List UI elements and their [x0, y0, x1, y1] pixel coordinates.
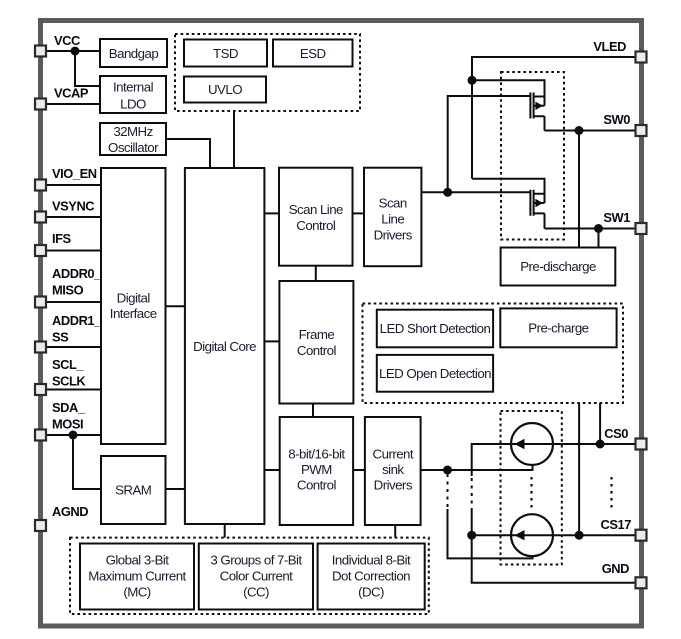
- svg-text:Interface: Interface: [110, 306, 157, 321]
- svg-text:Digital Core: Digital Core: [193, 339, 256, 354]
- svg-text:SW1: SW1: [603, 210, 630, 225]
- svg-text:Drivers: Drivers: [374, 477, 413, 492]
- svg-text:Scan: Scan: [379, 196, 407, 211]
- svg-text:3 Groups of 7-Bit: 3 Groups of 7-Bit: [210, 553, 302, 568]
- svg-text:Current: Current: [373, 447, 414, 462]
- svg-text:(MC): (MC): [123, 585, 150, 600]
- svg-text:Scan Line: Scan Line: [289, 202, 343, 217]
- svg-text:AGND: AGND: [52, 504, 88, 519]
- svg-text:LED Short Detection: LED Short Detection: [380, 321, 491, 336]
- svg-text:(DC): (DC): [358, 585, 384, 600]
- svg-text:Maximum Current: Maximum Current: [88, 569, 186, 584]
- svg-text:ESD: ESD: [300, 46, 326, 61]
- svg-text:SCL_: SCL_: [52, 357, 84, 372]
- svg-text:SRAM: SRAM: [115, 483, 151, 498]
- svg-text:SCLK: SCLK: [52, 374, 86, 389]
- svg-text:LDO: LDO: [120, 97, 146, 112]
- svg-text:Bandgap: Bandgap: [109, 46, 159, 61]
- svg-text:Pre-charge: Pre-charge: [528, 321, 588, 336]
- svg-text:Frame: Frame: [299, 327, 335, 342]
- svg-text:32MHz: 32MHz: [113, 124, 152, 139]
- svg-text:sink: sink: [382, 462, 404, 477]
- svg-text:VCAP: VCAP: [54, 86, 89, 101]
- svg-text:Control: Control: [297, 477, 337, 492]
- svg-text:CS0: CS0: [604, 426, 628, 441]
- svg-text:Individual 8-Bit: Individual 8-Bit: [332, 553, 411, 568]
- svg-text:Digital: Digital: [117, 291, 151, 306]
- svg-text:SS: SS: [52, 330, 69, 345]
- svg-text:PWM: PWM: [301, 462, 332, 477]
- svg-text:Control: Control: [296, 218, 336, 233]
- svg-text:ADDR0_: ADDR0_: [52, 266, 102, 281]
- svg-text:Line: Line: [381, 212, 404, 227]
- svg-text:Control: Control: [297, 343, 337, 358]
- svg-text:(CC): (CC): [243, 585, 269, 600]
- svg-text:MOSI: MOSI: [52, 417, 83, 432]
- svg-text:VCC: VCC: [54, 33, 80, 48]
- svg-text:IFS: IFS: [52, 231, 72, 246]
- svg-text:Global 3-Bit: Global 3-Bit: [106, 553, 170, 568]
- svg-text:8-bit/16-bit: 8-bit/16-bit: [288, 447, 345, 462]
- svg-text:UVLO: UVLO: [208, 82, 242, 97]
- svg-text:VSYNC: VSYNC: [52, 199, 94, 214]
- svg-text:Drivers: Drivers: [374, 228, 413, 243]
- svg-text:Internal: Internal: [113, 80, 154, 95]
- svg-text:SDA_: SDA_: [52, 400, 86, 415]
- svg-text:ADDR1_: ADDR1_: [52, 313, 102, 328]
- svg-text:CS17: CS17: [601, 517, 632, 532]
- svg-text:Oscillator: Oscillator: [108, 140, 159, 155]
- svg-text:VLED: VLED: [593, 39, 626, 54]
- svg-text:SW0: SW0: [603, 112, 630, 127]
- svg-text:TSD: TSD: [213, 46, 238, 61]
- svg-text:LED Open Detection: LED Open Detection: [379, 366, 491, 381]
- svg-text:Pre-discharge: Pre-discharge: [520, 259, 596, 274]
- svg-text:Dot Correction: Dot Correction: [332, 569, 410, 584]
- svg-text:Color Current: Color Current: [220, 569, 294, 584]
- svg-text:VIO_EN: VIO_EN: [52, 166, 97, 181]
- svg-text:GND: GND: [602, 561, 629, 576]
- svg-text:MISO: MISO: [52, 283, 84, 298]
